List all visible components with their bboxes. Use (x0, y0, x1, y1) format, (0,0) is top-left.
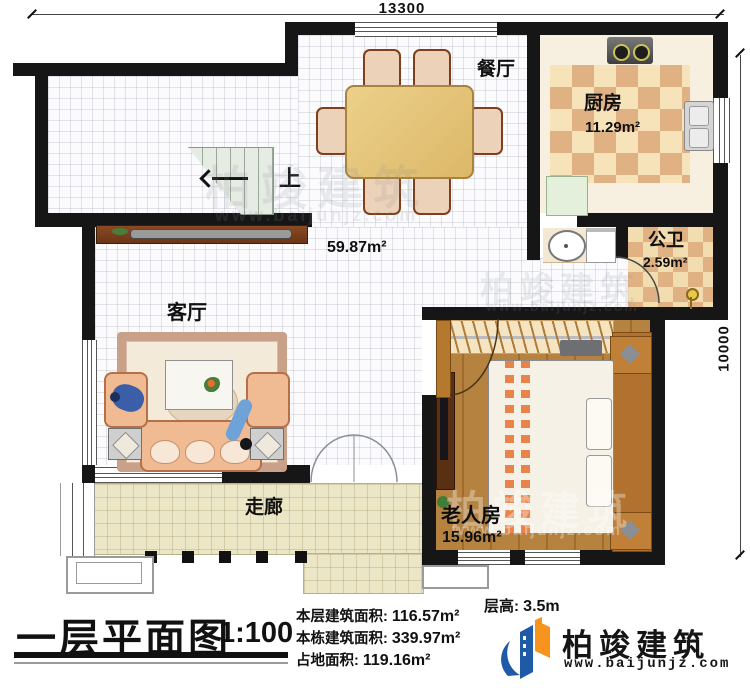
top-wall-right-seg (497, 22, 728, 35)
side-table-left (108, 428, 142, 460)
living-label: 客厅 (167, 303, 207, 324)
floor-height-label: 层高: (484, 598, 519, 615)
washing-machine (586, 228, 616, 263)
right-dimension-label: 10000 (716, 319, 733, 379)
person-sitting-head (110, 392, 120, 402)
title-underline-thick (14, 652, 288, 658)
kitchen-south-wall (577, 213, 728, 227)
porch-column (219, 551, 231, 563)
kitchen-right-window (713, 98, 730, 163)
bath-left-wall (616, 227, 628, 258)
watermark-website-2: www.baijunjz.com (486, 298, 639, 314)
tv-screen (440, 396, 448, 460)
bedroom-door-arc (449, 318, 499, 396)
stat-label: 本层建筑面积: (296, 609, 388, 625)
bedroom-porch-step (422, 565, 489, 589)
armchair-right (246, 372, 290, 428)
bedroom-south-wall-b (510, 550, 525, 565)
stat-row: 本层建筑面积: 116.57m² (296, 606, 460, 628)
bathroom-area: 2.59m² (643, 255, 687, 269)
floor-drain (686, 288, 699, 301)
corridor-floor (93, 483, 424, 555)
sideboard-tray (130, 229, 292, 239)
stat-row: 占地面积: 119.16m² (296, 650, 460, 672)
bedroom-area: 15.96m² (442, 530, 502, 546)
corridor-extension-floor (303, 553, 424, 594)
stat-value: 116.57m² (392, 608, 460, 625)
kitchen-sink (684, 101, 714, 151)
company-logo-icon (496, 616, 558, 682)
stat-value: 119.16m² (363, 652, 431, 669)
person-lying-head (240, 438, 252, 450)
coffee-table (165, 360, 233, 410)
side-table-right (250, 428, 284, 460)
top-window (355, 22, 497, 37)
kitchen-left-wall (527, 35, 540, 213)
sofa-cushion (185, 440, 215, 464)
bedroom-south-window-a (458, 552, 510, 565)
hall-area: 59.87m² (327, 240, 387, 256)
dining-label: 餐厅 (477, 60, 515, 80)
fridge (546, 176, 588, 216)
bathroom-label: 公卫 (648, 231, 684, 250)
bedroom-south-wall-c (580, 550, 665, 565)
dining-chair (469, 107, 503, 155)
west-porch-window (60, 483, 95, 556)
entry-steps-inner (76, 562, 142, 584)
watermark-website: www.baijunjz.com (215, 205, 418, 226)
bedroom-south-window-b (525, 552, 580, 565)
left-wall-lower (82, 227, 95, 340)
coffee-table-flowers (204, 377, 222, 393)
kitchen-area: 11.29m² (585, 120, 640, 135)
sideboard-plant (112, 228, 128, 235)
porch-column (256, 551, 268, 563)
stat-label: 本栋建筑面积: (296, 631, 388, 647)
kitchen-label: 厨房 (584, 94, 622, 114)
right-dimension-line (740, 55, 741, 557)
bedroom-right-wall (650, 307, 665, 565)
plan-scale: 1:100 (219, 617, 293, 650)
bedroom-south-wall-a (422, 550, 458, 565)
company-logo-website: www.baijunjz.com (564, 656, 730, 672)
floor-height: 层高: 3.5m (484, 595, 560, 616)
floor-plan-canvas: 上 (0, 0, 750, 688)
bed-pillow (586, 398, 612, 450)
title-underline-thin (14, 662, 288, 664)
porch-column (182, 551, 194, 563)
wash-basin (548, 230, 586, 262)
area-stats: 本层建筑面积: 116.57m² 本栋建筑面积: 339.97m² 占地面积: … (296, 606, 460, 672)
right-wall-upper (713, 22, 728, 98)
left-corner-block (82, 465, 95, 483)
nightstand-top (610, 336, 652, 374)
stat-row: 本栋建筑面积: 339.97m² (296, 628, 460, 650)
floor-height-value: 3.5m (523, 598, 559, 615)
floor-drain-stem (690, 297, 692, 309)
gas-stove (607, 37, 653, 64)
stat-label: 占地面积: (296, 653, 359, 669)
left-window (82, 340, 97, 465)
sofa-cushion (150, 440, 180, 464)
french-door-arcs (310, 434, 398, 483)
kitchen-left-wall-stub (527, 213, 540, 260)
left-wall-upper (35, 63, 48, 227)
bed-blanket-fold (560, 340, 602, 356)
right-wall-lower (713, 163, 728, 320)
stat-value: 339.97m² (392, 630, 461, 647)
upper-left-wall (13, 63, 298, 76)
bedroom-label: 老人房 (441, 506, 501, 527)
corridor-label: 走廊 (245, 498, 283, 518)
top-dimension-label: 13300 (372, 0, 432, 17)
porch-column (295, 551, 307, 563)
bedroom-left-wall (422, 395, 436, 565)
